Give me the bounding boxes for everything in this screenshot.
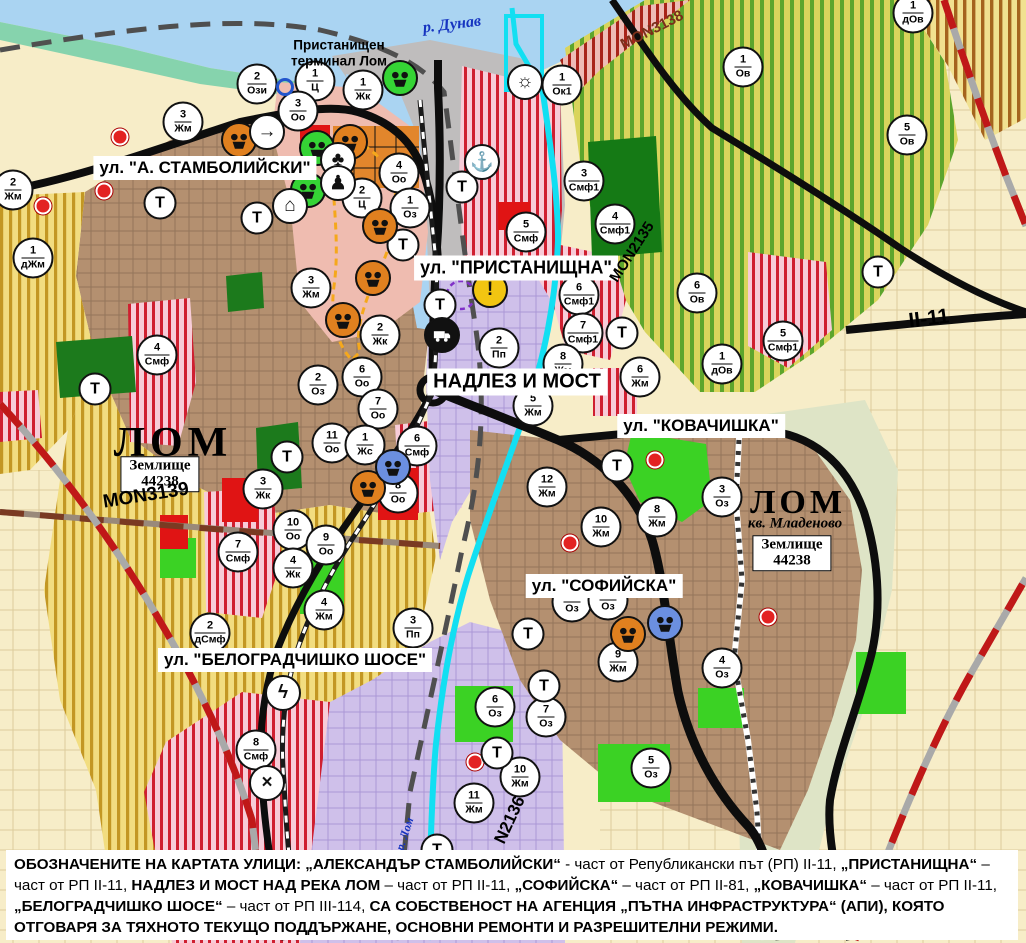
footer-segment: – част от РП II-81, [618,877,753,894]
footer-segment: НАДЛЕЗ И МОСТ НАД РЕКА ЛОМ [131,877,380,894]
footer-segment: „БЕЛОГРАДЧИШКО ШОСЕ“ [14,898,223,915]
footer-segment: – част от РП III-114, [223,898,370,915]
footer-segment: - част от Републикански път (РП) II-11, [561,856,841,873]
footer-segment: „ПРИСТАНИЩНА“ [841,856,977,873]
footer-segment: „СОФИЙСКА“ [515,877,619,894]
zoning-map: 2Ози1Ц1Жк3Оо3Жм2Жм1дЖм4Оо2Ц1Оз3Жм1Ок13См… [0,0,1026,943]
map-canvas [0,0,1026,943]
footer-segment: ОБОЗНАЧЕНИТЕ НА КАРТАТА УЛИЦИ: „АЛЕКСАНД… [14,856,561,873]
footer-segment: – част от РП II-11, [867,877,997,894]
footer-segment: – част от РП II-11, [380,877,514,894]
footer-note: ОБОЗНАЧЕНИТЕ НА КАРТАТА УЛИЦИ: „АЛЕКСАНД… [6,850,1018,940]
footer-segment: „КОВАЧИШКА“ [754,877,867,894]
